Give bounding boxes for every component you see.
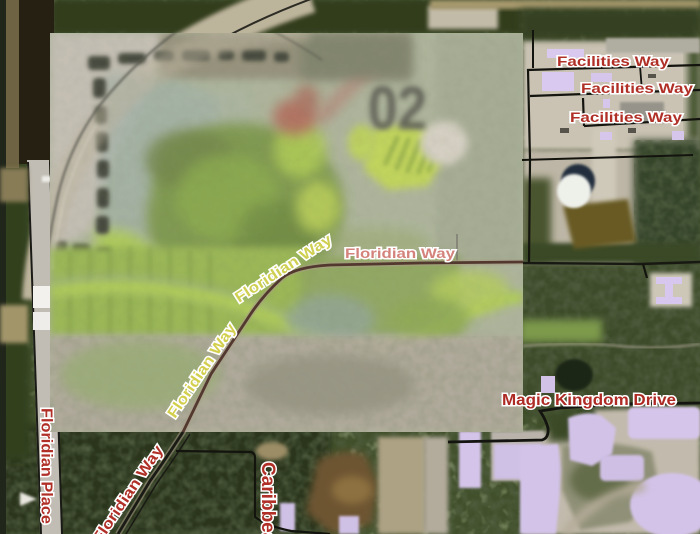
- svg-text:Floridian Place: Floridian Place: [38, 408, 55, 524]
- svg-text:Floridian Way: Floridian Way: [345, 246, 456, 261]
- svg-text:Caribbean: Caribbean: [257, 462, 278, 534]
- svg-text:Magic Kingdom Drive: Magic Kingdom Drive: [502, 392, 676, 409]
- svg-text:Facilities Way: Facilities Way: [581, 80, 693, 96]
- svg-text:Facilities Way: Facilities Way: [557, 53, 669, 69]
- svg-text:Facilities Way: Facilities Way: [570, 109, 682, 125]
